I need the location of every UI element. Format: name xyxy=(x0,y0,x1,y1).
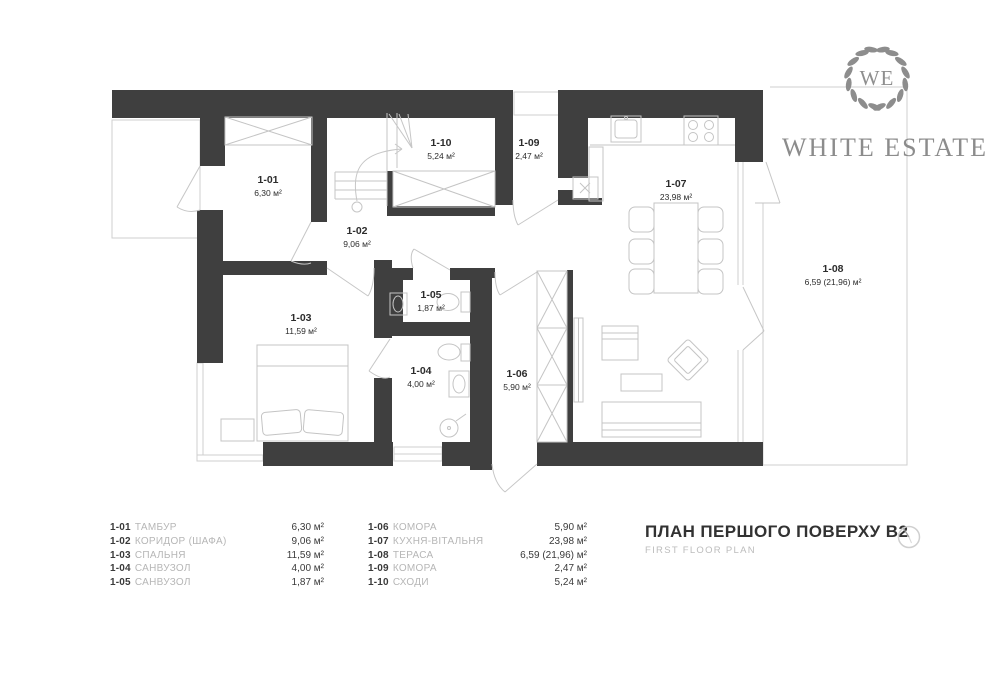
toilet-1-04 xyxy=(438,344,470,361)
legend-row: 1-09КОМОРА2,47 м² xyxy=(368,563,587,577)
fridge xyxy=(589,147,603,201)
page-title: ПЛАН ПЕРШОГО ПОВЕРХУ В2 xyxy=(645,522,905,542)
kitchen-sink xyxy=(611,116,641,142)
legend-row: 1-02КОРИДОР (ШАФА)9,06 м² xyxy=(110,536,324,550)
radiator xyxy=(574,318,583,402)
legend-row: 1-10СХОДИ5,24 м² xyxy=(368,577,587,591)
bed xyxy=(257,345,348,441)
legend-row: 1-03СПАЛЬНЯ11,59 м² xyxy=(110,550,324,564)
svg-text:1-03: 1-03 xyxy=(290,312,311,324)
logo-name: WHITE ESTATE xyxy=(782,133,972,163)
room-label-1-09: 1-092,47 м² xyxy=(515,137,543,161)
logo-monogram: WE xyxy=(860,66,895,90)
wardrobe-1-01 xyxy=(225,117,312,145)
room-label-1-03: 1-0311,59 м² xyxy=(285,312,317,336)
room-label-1-08: 1-086,59 (21,96) м² xyxy=(805,263,862,287)
svg-text:6,30 м²: 6,30 м² xyxy=(254,188,282,198)
nightstand xyxy=(221,419,254,441)
legend-row: 1-05САНВУЗОЛ1,87 м² xyxy=(110,577,324,591)
dining-chairs xyxy=(629,207,723,294)
svg-text:5,90 м²: 5,90 м² xyxy=(503,382,531,392)
legend-row: 1-07КУХНЯ-ВІТАЛЬНЯ23,98 м² xyxy=(368,536,587,550)
sink-1-04 xyxy=(449,371,469,397)
svg-text:1-04: 1-04 xyxy=(410,365,431,377)
legend-column-left: 1-01ТАМБУР6,30 м² 1-02КОРИДОР (ШАФА)9,06… xyxy=(110,522,324,591)
room-label-1-10: 1-105,24 м² xyxy=(427,137,455,161)
porch-outline xyxy=(112,120,200,238)
svg-text:6,59 (21,96) м²: 6,59 (21,96) м² xyxy=(805,277,862,287)
stairs xyxy=(335,113,412,212)
bedroom-window-bottom xyxy=(197,455,263,461)
page-subtitle: FIRST FLOOR PLAN xyxy=(645,545,905,556)
room-label-1-07: 1-0723,98 м² xyxy=(660,178,692,202)
legend-row: 1-04САНВУЗОЛ4,00 м² xyxy=(110,563,324,577)
room-label-1-04: 1-044,00 м² xyxy=(407,365,435,389)
bedroom-window-side xyxy=(197,363,203,455)
svg-text:1-08: 1-08 xyxy=(822,263,843,275)
shower-1-04 xyxy=(440,414,466,437)
coffee-table xyxy=(621,374,662,391)
legend-row: 1-01ТАМБУР6,30 м² xyxy=(110,522,324,536)
title-block: ПЛАН ПЕРШОГО ПОВЕРХУ В2 FIRST FLOOR PLAN xyxy=(645,522,905,556)
laurel-wreath-icon: WE xyxy=(832,40,922,120)
door-1-01 xyxy=(291,222,311,264)
svg-text:1-02: 1-02 xyxy=(346,225,367,237)
legend-row: 1-08ТЕРАСА6,59 (21,96) м² xyxy=(368,550,587,564)
door-1-05 xyxy=(411,249,450,270)
svg-text:4,00 м²: 4,00 м² xyxy=(407,379,435,389)
room-label-1-01: 1-016,30 м² xyxy=(254,174,282,198)
boiler-unit xyxy=(573,177,598,199)
armchair xyxy=(667,339,709,381)
door-1-06-top xyxy=(495,272,537,295)
wardrobe-corridor xyxy=(393,171,495,207)
room-label-1-06: 1-065,90 м² xyxy=(503,368,531,392)
room-label-1-02: 1-029,06 м² xyxy=(343,225,371,249)
svg-text:9,06 м²: 9,06 м² xyxy=(343,239,371,249)
svg-text:1,87 м²: 1,87 м² xyxy=(417,303,445,313)
svg-text:1-05: 1-05 xyxy=(420,289,441,301)
floor-plan-page: { "logo": { "monogram": "WE", "name": "W… xyxy=(0,0,990,700)
svg-text:1-10: 1-10 xyxy=(430,137,451,149)
legend-row: 1-06КОМОРА5,90 м² xyxy=(368,522,587,536)
door-1-04 xyxy=(369,339,390,378)
shelving-1-06 xyxy=(537,271,567,442)
svg-text:1-06: 1-06 xyxy=(506,368,527,380)
door-1-09 xyxy=(513,200,558,225)
door-bedroom xyxy=(327,268,374,296)
svg-text:23,98 м²: 23,98 м² xyxy=(660,192,692,202)
door-terrace-kitchen xyxy=(755,162,780,203)
sofa xyxy=(602,402,701,437)
svg-text:5,24 м²: 5,24 м² xyxy=(427,151,455,161)
entry-door xyxy=(177,166,200,211)
door-1-06-bottom xyxy=(492,464,537,492)
dining-table xyxy=(654,203,698,293)
svg-text:2,47 м²: 2,47 м² xyxy=(515,151,543,161)
tv-stand xyxy=(602,326,638,360)
stairs-direction-arrow xyxy=(355,149,402,201)
room-label-1-05: 1-051,87 м² xyxy=(417,289,445,313)
svg-text:1-01: 1-01 xyxy=(257,174,278,186)
logo: WE WHITE ESTATE xyxy=(782,40,972,163)
svg-text:1-07: 1-07 xyxy=(665,178,686,190)
svg-text:1-09: 1-09 xyxy=(518,137,539,149)
legend-column-right: 1-06КОМОРА5,90 м² 1-07КУХНЯ-ВІТАЛЬНЯ23,9… xyxy=(368,522,587,591)
compass-icon xyxy=(895,523,923,551)
door-terrace-living xyxy=(743,287,764,350)
stove xyxy=(684,116,718,145)
svg-text:11,59 м²: 11,59 м² xyxy=(285,326,317,336)
